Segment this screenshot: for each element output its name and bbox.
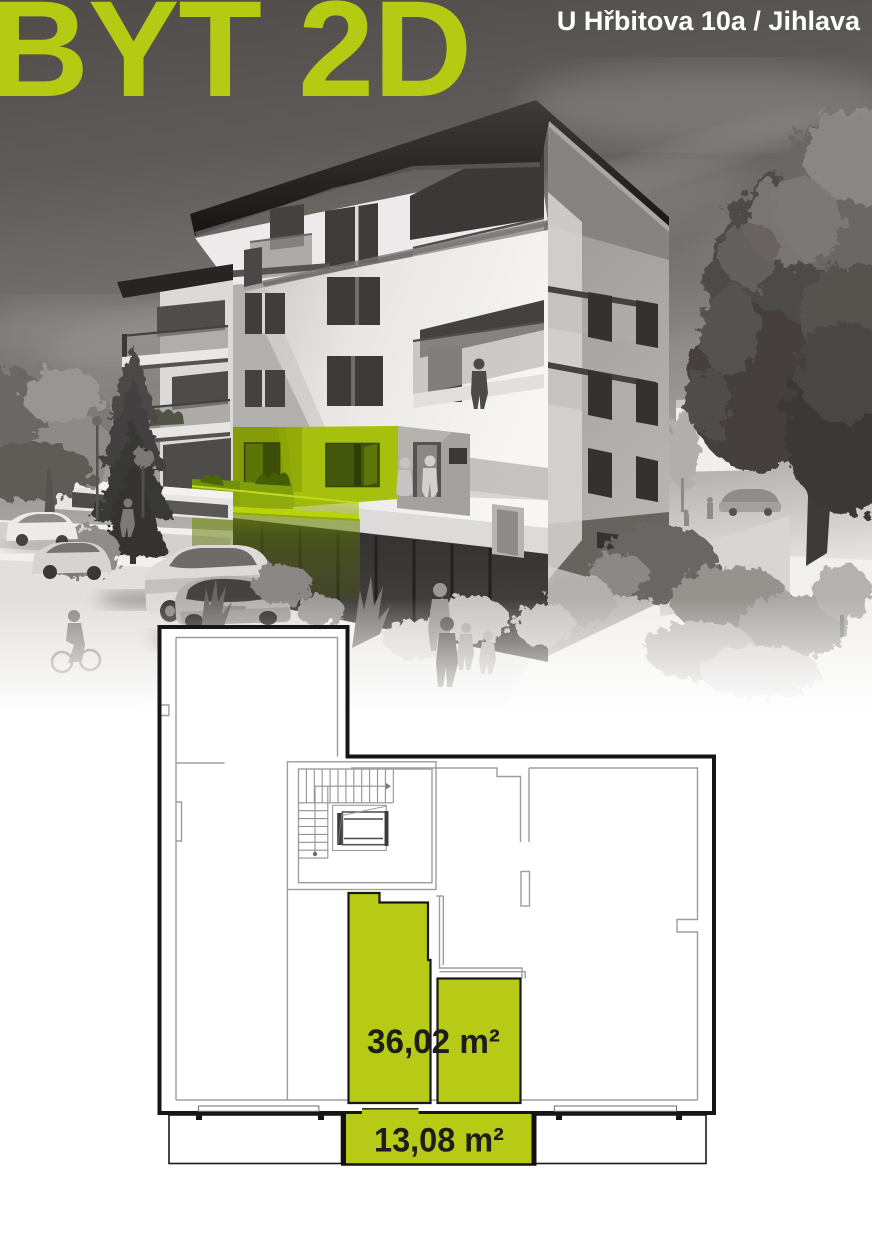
svg-text:U Hřbitova 10a / Jihlava: U Hřbitova 10a / Jihlava [557, 6, 861, 36]
svg-text:13,08 m²: 13,08 m² [374, 1122, 504, 1160]
svg-text:BYT 2D: BYT 2D [0, 0, 471, 126]
svg-text:36,02 m²: 36,02 m² [367, 1023, 500, 1061]
